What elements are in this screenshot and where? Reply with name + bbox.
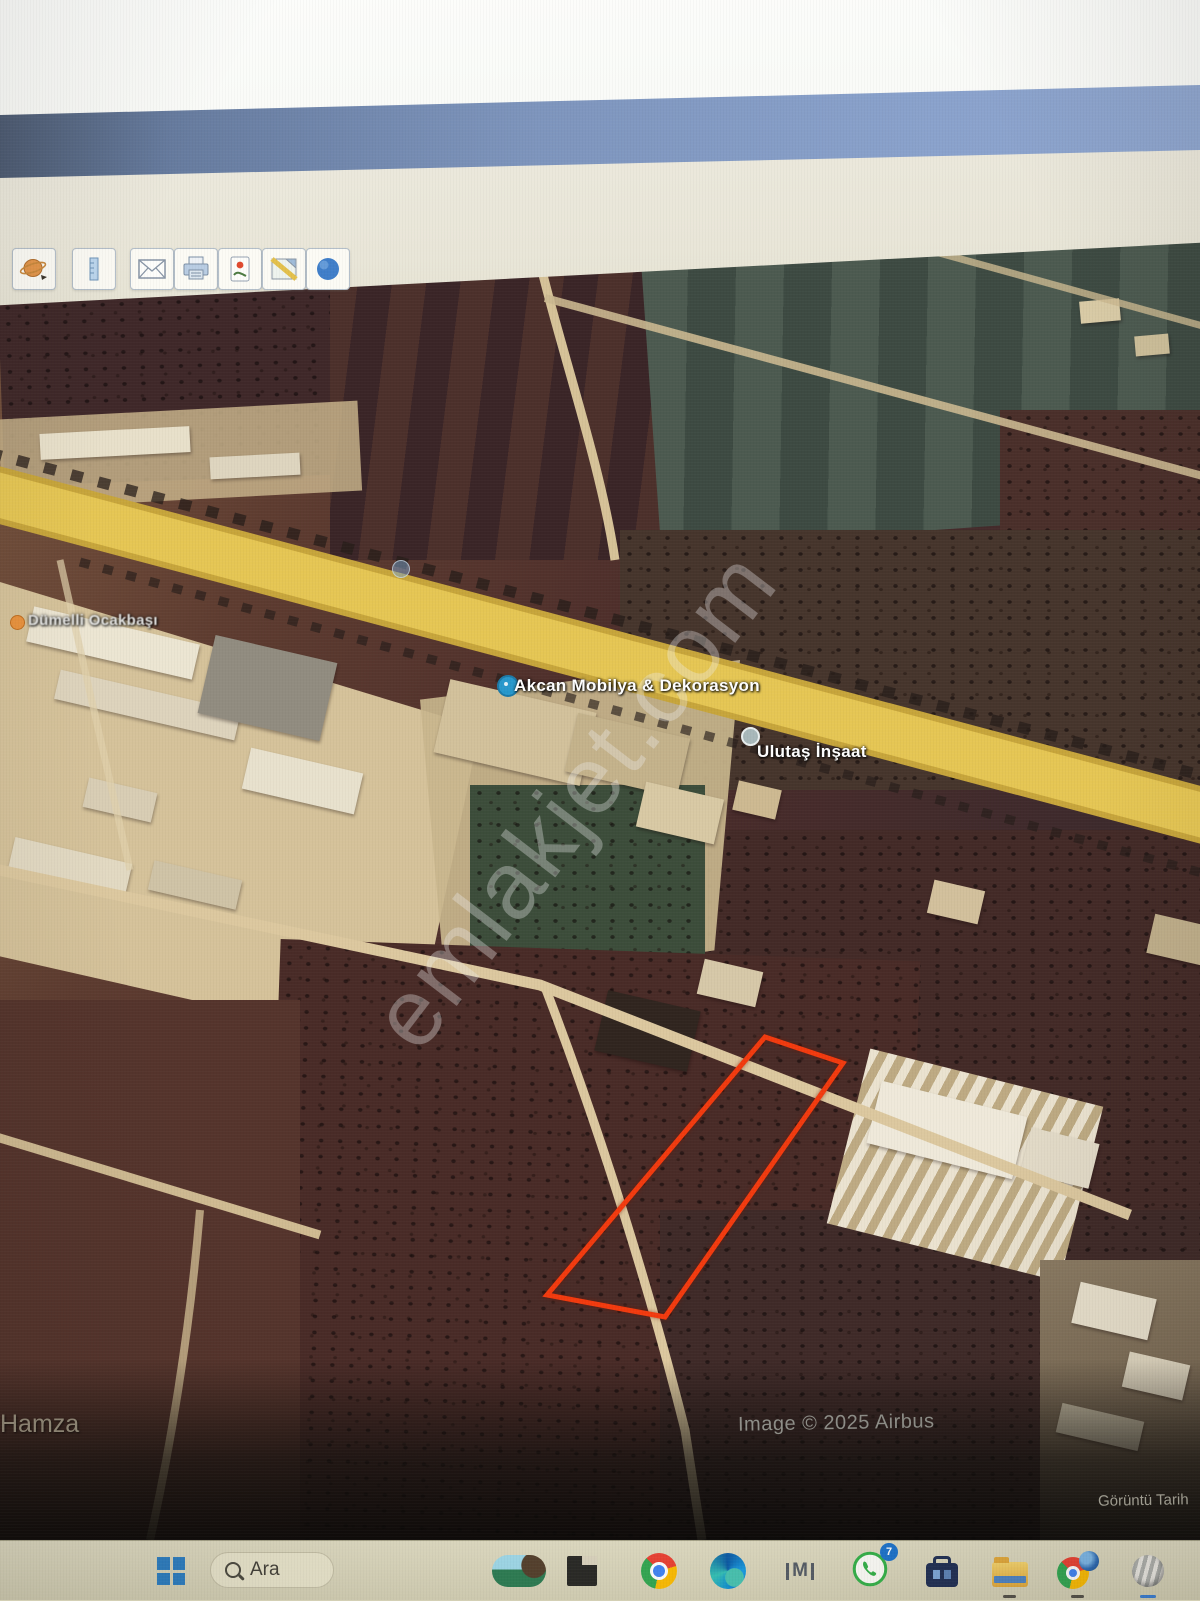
widgets-icon[interactable]: [491, 1541, 547, 1601]
imagery-attribution: Image © 2025 Airbus: [738, 1410, 935, 1436]
map-view-icon[interactable]: [262, 248, 306, 290]
pin-dot: [504, 682, 508, 686]
google-earth-icon[interactable]: [1128, 1541, 1168, 1601]
dark-window-app-icon[interactable]: [565, 1541, 599, 1601]
print-icon[interactable]: [174, 248, 218, 290]
briefcase-glyph: [926, 1563, 958, 1587]
whatsapp-icon[interactable]: 7: [850, 1541, 890, 1601]
briefcase-app-icon[interactable]: [922, 1541, 962, 1601]
im-app-icon[interactable]: M: [780, 1541, 820, 1601]
globe-icon[interactable]: [306, 248, 350, 290]
whatsapp-badge: 7: [880, 1543, 898, 1561]
folder-glyph: [992, 1562, 1028, 1587]
imagery-date-label: Görüntü Tarih: [1098, 1491, 1189, 1510]
print-glyph: [181, 255, 211, 283]
im-glyph: M: [786, 1560, 814, 1582]
ruler-icon[interactable]: [72, 248, 116, 290]
planet-glyph: [19, 255, 49, 283]
whatsapp-logo: 7: [852, 1551, 888, 1592]
parcel-outline[interactable]: [0, 230, 1200, 1540]
save-image-glyph: [227, 255, 253, 283]
search-label: Ara: [250, 1559, 280, 1581]
chrome-icon[interactable]: [639, 1541, 679, 1601]
email-glyph: [137, 256, 167, 282]
search-icon: [225, 1562, 241, 1578]
windows-taskbar: M 7: [0, 1540, 1200, 1601]
running-indicator: [1071, 1595, 1084, 1598]
map-view-glyph: [269, 256, 299, 282]
place-label: Hamza: [0, 1410, 79, 1439]
small-poi-pin[interactable]: [392, 560, 410, 578]
chrome-earth-glyph: [1057, 1551, 1099, 1591]
satellite-map[interactable]: Dümelli Ocakbaşı Akcan Mobilya & Dekoras…: [0, 230, 1200, 1540]
poi-label: Dümelli Ocakbaşı: [28, 612, 158, 629]
windows-logo: [157, 1557, 185, 1585]
running-indicator: [1003, 1595, 1016, 1598]
screen-bottom-shade: [0, 1360, 1200, 1540]
poi-label: Ulutaş İnşaat: [757, 742, 867, 762]
google-earth-glyph: [1132, 1555, 1164, 1587]
running-indicator: [1140, 1595, 1156, 1598]
earth-globe-overlay: [1079, 1551, 1099, 1571]
search-input[interactable]: Ara: [210, 1552, 334, 1588]
edge-icon[interactable]: [708, 1541, 748, 1601]
widgets-weather-image: [492, 1555, 546, 1587]
file-explorer-icon[interactable]: [990, 1541, 1030, 1601]
save-image-icon[interactable]: [218, 248, 262, 290]
chrome-logo: [641, 1553, 677, 1589]
edge-logo: [710, 1553, 746, 1589]
email-icon[interactable]: [130, 248, 174, 290]
orange-poi-pin[interactable]: [10, 615, 25, 630]
planet-icon[interactable]: [12, 248, 56, 290]
dark-window-glyph: [567, 1556, 597, 1586]
windows-start-icon[interactable]: [153, 1541, 189, 1601]
ruler-glyph: [81, 255, 107, 283]
globe-glyph: [314, 255, 342, 283]
chrome-earth-icon[interactable]: [1056, 1541, 1100, 1601]
